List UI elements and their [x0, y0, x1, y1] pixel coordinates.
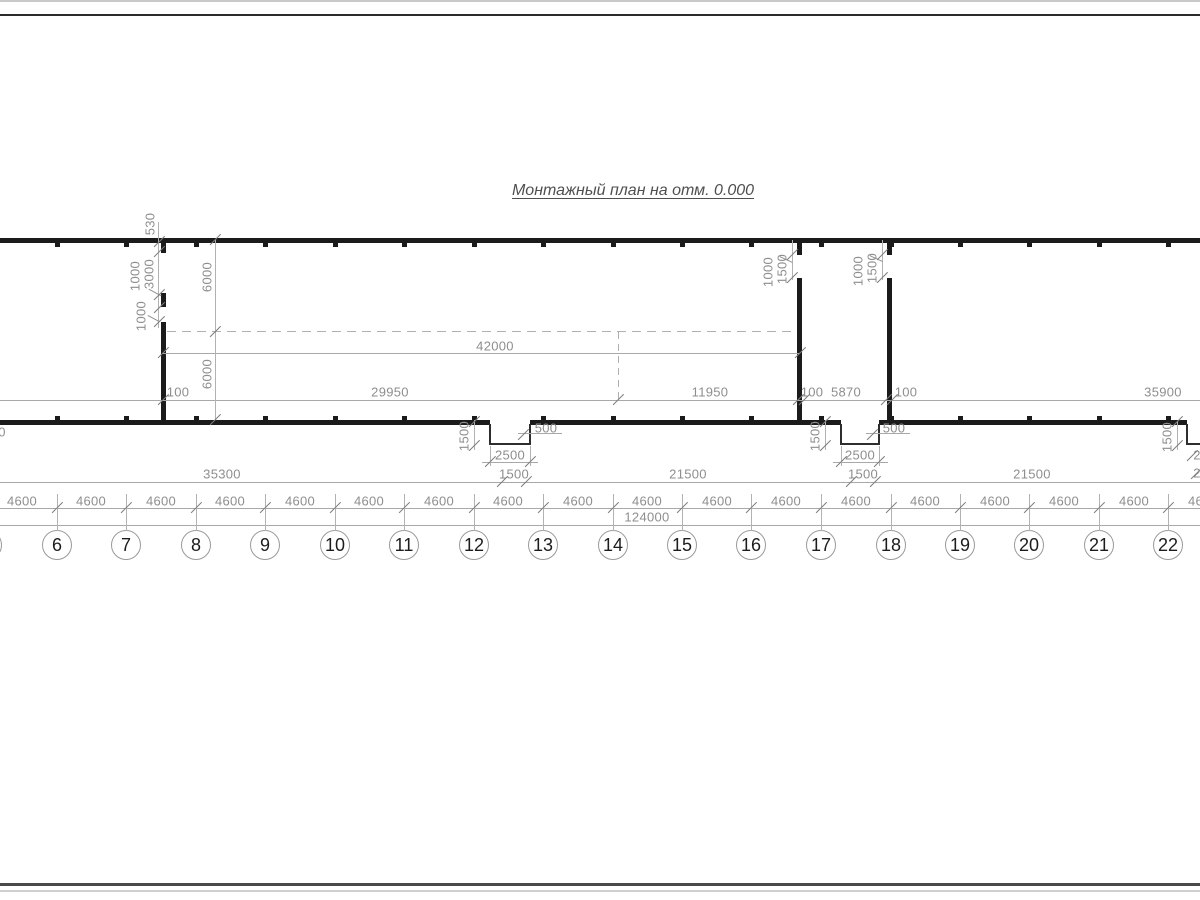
axis-circle: 21: [1084, 530, 1114, 560]
interior-wall-1-lower: [161, 322, 166, 425]
dimension-label: 100: [895, 386, 918, 399]
column-mark: [472, 243, 477, 247]
dimension-line-row-interior: [0, 400, 1200, 401]
spacing-dimension-label: 4600: [7, 495, 37, 508]
dimension-line-row-total: [0, 525, 1200, 526]
dimension-line-row-spacing: [0, 508, 1200, 509]
column-mark: [333, 416, 338, 420]
axis-circle: 18: [876, 530, 906, 560]
axis-extension-line: [404, 494, 405, 531]
spacing-dimension-label: 4600: [563, 495, 593, 508]
dimension-label: 500: [535, 422, 558, 435]
column-mark: [1027, 416, 1032, 420]
drawing-sheet: Монтажный план на отм. 0.000 678910: [0, 0, 1200, 900]
column-mark: [889, 416, 894, 420]
dimension-label: 1500: [866, 253, 879, 283]
axis-extension-line: [960, 494, 961, 531]
column-mark: [55, 416, 60, 420]
pit-3-bottom: [1186, 443, 1200, 445]
column-mark: [680, 243, 685, 247]
axis-circle: 16: [736, 530, 766, 560]
axis-extension-line: [613, 494, 614, 531]
column-mark: [749, 416, 754, 420]
spacing-dimension-label: 4600: [146, 495, 176, 508]
axis-circle: 9: [250, 530, 280, 560]
column-mark: [1097, 243, 1102, 247]
drawing-title: Монтажный план на отм. 0.000: [512, 182, 754, 200]
tick-mark: [866, 429, 878, 441]
column-mark: [958, 416, 963, 420]
axis-circle: 11: [389, 530, 419, 560]
dimension-line-wall2-chain: [792, 240, 793, 280]
column-mark: [889, 243, 894, 247]
spacing-dimension-label: 4600: [632, 495, 662, 508]
column-mark: [541, 243, 546, 247]
axis-circle: 12: [459, 530, 489, 560]
frame-bottom-edge: [0, 890, 1200, 892]
pit-2-bottom: [840, 443, 880, 445]
axis-extension-line: [751, 494, 752, 531]
axis-extension-line: [682, 494, 683, 531]
dimension-label: 5870: [831, 386, 861, 399]
column-mark: [333, 243, 338, 247]
column-mark: [819, 416, 824, 420]
spacing-dimension-label: 4600: [285, 495, 315, 508]
axis-extension-line: [126, 494, 127, 531]
axis-extension-line: [1029, 494, 1030, 531]
spacing-dimension-label: 4600: [354, 495, 384, 508]
axis-circle-partial: [0, 530, 2, 560]
spacing-dimension-label: 4600: [215, 495, 245, 508]
tick-mark: [517, 429, 529, 441]
spacing-dimension-label: 4600: [424, 495, 454, 508]
axis-circle: 14: [598, 530, 628, 560]
axis-circle: 15: [667, 530, 697, 560]
column-mark: [263, 243, 268, 247]
column-mark: [958, 243, 963, 247]
axis-circle: 20: [1014, 530, 1044, 560]
axis-circle: 6: [42, 530, 72, 560]
pit-2-left-wall: [840, 424, 842, 445]
dimension-line-left-chain: [158, 222, 159, 328]
spacing-dimension-label: 4600: [1188, 495, 1200, 508]
dimension-label: 100: [167, 386, 190, 399]
spacing-dimension-label: 4600: [980, 495, 1010, 508]
dimension-label: 100: [801, 386, 824, 399]
column-mark: [749, 243, 754, 247]
bottom-wall-segment-3: [879, 420, 1187, 425]
pit-3-left-wall: [1186, 424, 1188, 445]
spacing-dimension-label: 4600: [771, 495, 801, 508]
column-mark: [611, 416, 616, 420]
bottom-wall-segment-1: [0, 420, 490, 425]
spacing-dimension-label: 4600: [493, 495, 523, 508]
frame-top-edge: [0, 0, 1200, 2]
spacing-dimension-label: 4600: [910, 495, 940, 508]
dimension-label: 2500: [495, 449, 525, 462]
dimension-label: 35900: [1144, 386, 1182, 399]
axis-circle: 13: [528, 530, 558, 560]
column-mark: [124, 416, 129, 420]
spacing-dimension-label: 4600: [76, 495, 106, 508]
dimension-label: 21500: [1013, 468, 1051, 481]
spacing-dimension-label: 4600: [841, 495, 871, 508]
axis-extension-line: [821, 494, 822, 531]
axis-circle: 10: [320, 530, 350, 560]
dimension-label: 1000: [762, 257, 775, 287]
column-mark: [611, 243, 616, 247]
dimension-label: 530: [144, 213, 157, 236]
dimension-label: 1000: [852, 256, 865, 286]
dimension-label: 1000: [135, 301, 148, 331]
midline-dashed: [167, 331, 797, 332]
column-mark: [402, 416, 407, 420]
axis-extension-line: [335, 494, 336, 531]
dimension-label: 124000: [624, 511, 669, 524]
column-mark: [55, 243, 60, 247]
column-mark: [124, 243, 129, 247]
spacing-dimension-label: 4600: [1049, 495, 1079, 508]
dimension-label: 6000: [201, 359, 214, 389]
dimension-line-row-segments: [0, 482, 1200, 483]
axis-circle: 17: [806, 530, 836, 560]
pit-1-right-wall: [529, 424, 531, 445]
column-mark: [263, 416, 268, 420]
pit-2-right-wall: [878, 424, 880, 445]
column-mark: [1166, 416, 1171, 420]
axis-extension-line: [1168, 494, 1169, 531]
axis-extension-line: [543, 494, 544, 531]
frame-bottom-line: [0, 883, 1200, 886]
tick-mark: [153, 302, 165, 314]
extension-dashed: [618, 332, 619, 400]
axis-circle: 8: [181, 530, 211, 560]
column-mark: [1097, 416, 1102, 420]
dimension-label: 35300: [203, 468, 241, 481]
dimension-label: 0: [0, 426, 6, 439]
column-mark: [819, 243, 824, 247]
axis-circle: 7: [111, 530, 141, 560]
axis-extension-line: [57, 494, 58, 531]
column-mark: [194, 243, 199, 247]
axis-circle: 19: [945, 530, 975, 560]
interior-wall-2-stub: [797, 240, 802, 255]
pit-1-left-wall: [489, 424, 491, 445]
dimension-label: 500: [883, 422, 906, 435]
dimension-label: 42000: [476, 340, 514, 353]
spacing-dimension-label: 4600: [1119, 495, 1149, 508]
axis-extension-line: [1099, 494, 1100, 531]
dimension-label: 1000: [129, 261, 142, 291]
axis-circle: 22: [1153, 530, 1183, 560]
spacing-dimension-label: 4600: [702, 495, 732, 508]
column-mark: [680, 416, 685, 420]
top-wall: [0, 238, 1200, 243]
column-mark: [541, 416, 546, 420]
axis-extension-line: [196, 494, 197, 531]
axis-extension-line: [265, 494, 266, 531]
column-mark: [1166, 243, 1171, 247]
column-mark: [194, 416, 199, 420]
dimension-label: 21500: [669, 468, 707, 481]
axis-extension-line: [474, 494, 475, 531]
dimension-label: 29950: [371, 386, 409, 399]
frame-top-line: [0, 14, 1200, 16]
dimension-label: 3000: [143, 259, 156, 289]
bottom-wall-segment-2: [530, 420, 841, 425]
dimension-label: 6000: [201, 262, 214, 292]
axis-extension-line: [891, 494, 892, 531]
dimension-label: 2500: [845, 449, 875, 462]
dimension-label: 11950: [692, 386, 729, 399]
pit-1-bottom: [489, 443, 531, 445]
column-mark: [402, 243, 407, 247]
column-mark: [1027, 243, 1032, 247]
